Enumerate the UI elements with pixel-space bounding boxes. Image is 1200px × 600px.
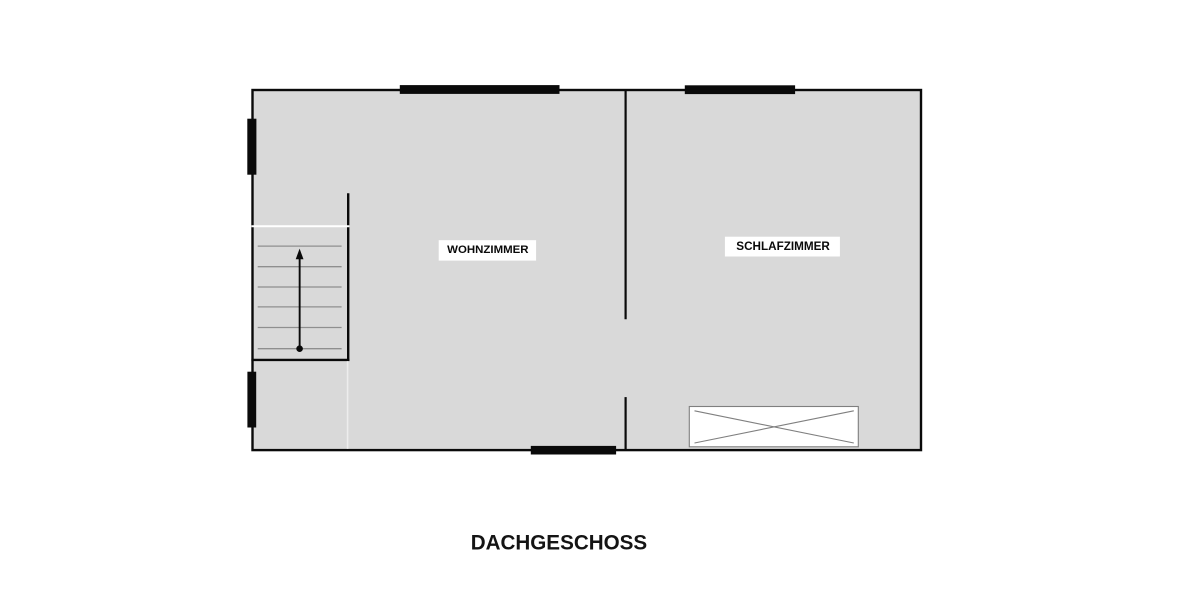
svg-text:DACHGESCHOSS: DACHGESCHOSS bbox=[471, 531, 648, 555]
svg-text:SCHLAFZIMMER: SCHLAFZIMMER bbox=[736, 241, 830, 253]
svg-text:WOHNZIMMER: WOHNZIMMER bbox=[447, 244, 528, 256]
